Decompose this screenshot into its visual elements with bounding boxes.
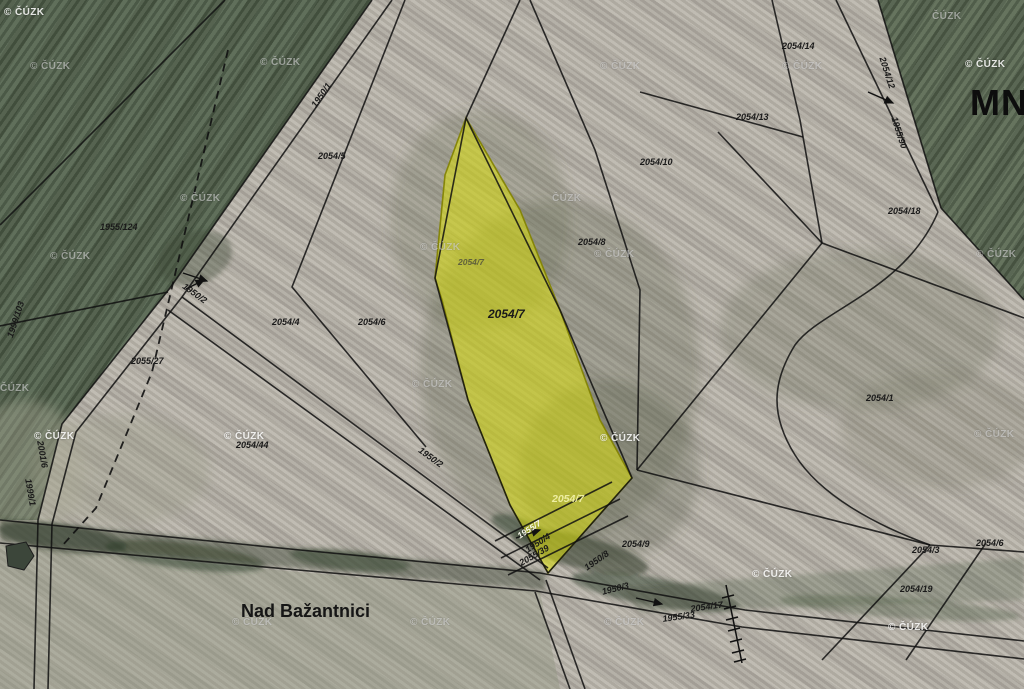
parcel-label: 2054/6 <box>976 539 1004 548</box>
parcel-label: 2054/19 <box>900 585 933 594</box>
parcel-label: 2054/7 <box>552 494 584 505</box>
parcel-label: 2054/10 <box>640 158 673 167</box>
cuzk-watermark: © ČÚZK <box>420 243 460 253</box>
parcel-label: 2054/13 <box>736 113 769 122</box>
cuzk-watermark: © ČÚZK <box>4 8 44 18</box>
parcel-label: 2055/27 <box>131 357 164 366</box>
parcel-label: 2054/18 <box>888 207 921 216</box>
cuzk-watermark: © ČÚZK <box>974 430 1014 440</box>
cuzk-watermark: © ČÚZK <box>594 250 634 260</box>
parcel-label: 2054/3 <box>912 546 940 555</box>
parcel-label: 2054/7 <box>488 308 525 320</box>
cuzk-watermark: ČÚZK <box>0 384 29 394</box>
place-name-label: Nad Bažantnici <box>241 601 370 622</box>
cuzk-watermark: ČÚZK <box>932 12 961 22</box>
cuzk-watermark: © ČÚZK <box>34 432 74 442</box>
parcel-label: 2054/5 <box>318 152 346 161</box>
cadastral-map-canvas[interactable]: 1955/1242055/271999/1031950/12054/52054/… <box>0 0 1024 689</box>
parcel-label: 2054/4 <box>272 318 300 327</box>
cuzk-watermark: © ČÚZK <box>224 432 264 442</box>
cuzk-watermark: © ČÚZK <box>412 380 452 390</box>
parcel-label: 2054/44 <box>236 441 269 450</box>
cuzk-watermark: © ČÚZK <box>180 194 220 204</box>
cuzk-watermark: © ČÚZK <box>50 252 90 262</box>
cuzk-watermark: ČÚZK <box>552 194 581 204</box>
cuzk-watermark: © ČÚZK <box>965 60 1005 70</box>
cuzk-watermark: © ČÚZK <box>600 62 640 72</box>
parcel-label: 2054/6 <box>358 318 386 327</box>
cuzk-watermark: © ČÚZK <box>976 250 1016 260</box>
map-overlay-graphics <box>0 0 1024 689</box>
cuzk-watermark: © ČÚZK <box>30 62 70 72</box>
cuzk-watermark: © ČÚZK <box>410 618 450 628</box>
cuzk-watermark: © ČÚZK <box>260 58 300 68</box>
cuzk-watermark: © ČÚZK <box>752 570 792 580</box>
cuzk-watermark: © ČÚZK <box>600 434 640 444</box>
cuzk-watermark: © ČÚZK <box>782 62 822 72</box>
cuzk-watermark: © ČÚZK <box>604 618 644 628</box>
parcel-label: 2054/14 <box>782 42 815 51</box>
parcel-label: 2054/1 <box>866 394 894 403</box>
parcel-label: 2054/8 <box>578 238 606 247</box>
municipality-label: MNÍ <box>970 82 1024 124</box>
cuzk-watermark: © ČÚZK <box>888 623 928 633</box>
parcel-label: 2054/7 <box>458 258 484 267</box>
parcel-label: 1955/124 <box>100 223 138 232</box>
parcel-label: 2054/9 <box>622 540 650 549</box>
